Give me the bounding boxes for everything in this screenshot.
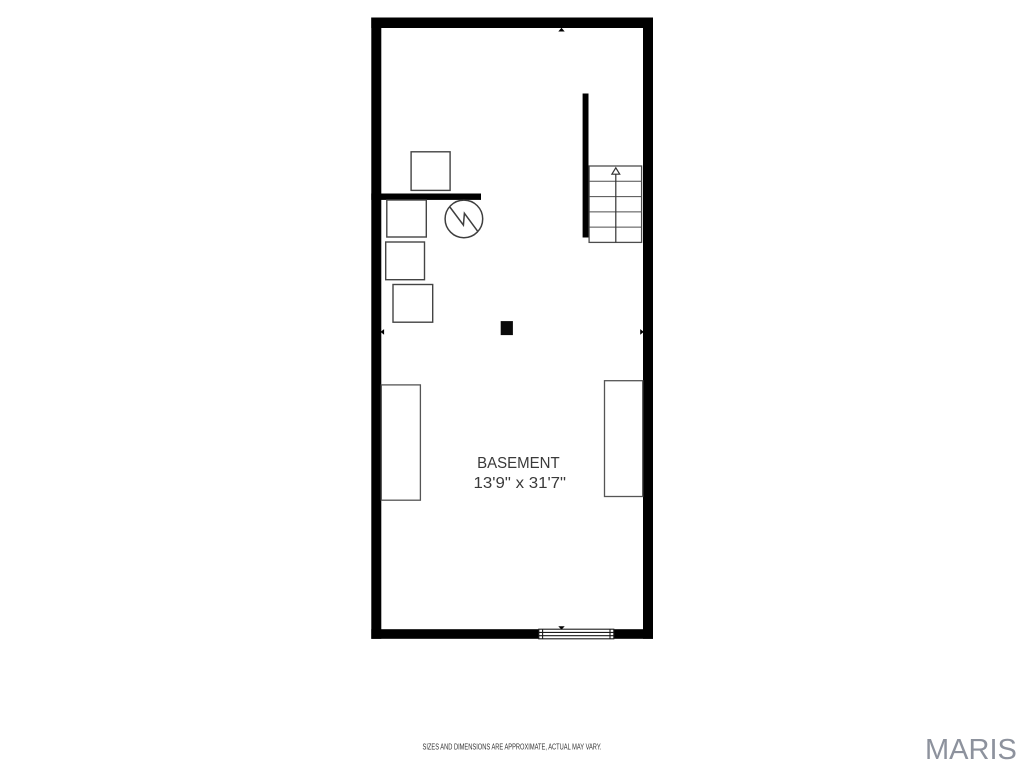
svg-text:13'9" x 31'7": 13'9" x 31'7"	[474, 475, 567, 492]
svg-text:MARIS: MARIS	[925, 734, 1017, 766]
svg-text:BASEMENT: BASEMENT	[477, 455, 560, 472]
svg-text:SIZES AND DIMENSIONS ARE APPRO: SIZES AND DIMENSIONS ARE APPROXIMATE, AC…	[423, 742, 602, 751]
